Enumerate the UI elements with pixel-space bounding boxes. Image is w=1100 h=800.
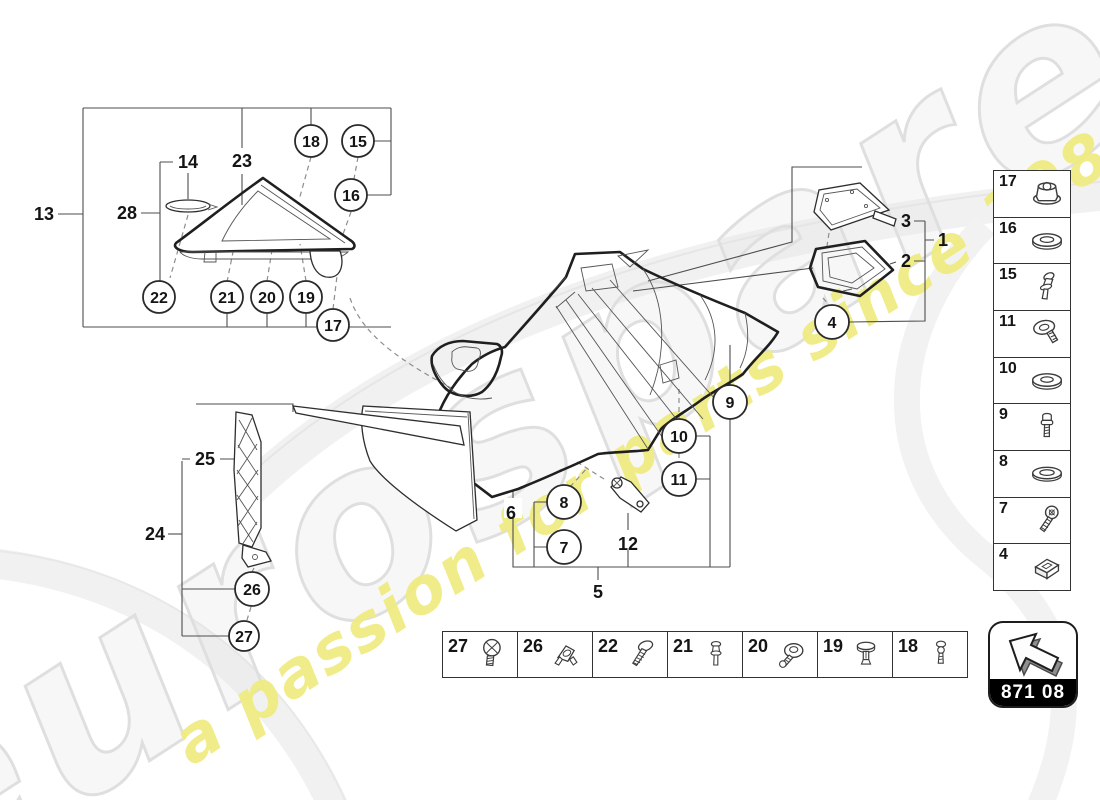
part-number: 27 (448, 636, 468, 657)
part-number: 20 (748, 636, 768, 657)
quarter-trim-part (166, 178, 354, 277)
flange-nut-icon (1026, 173, 1068, 215)
svg-text:17: 17 (324, 318, 342, 335)
callout-10[interactable]: 10 (662, 419, 696, 453)
svg-text:27: 27 (235, 629, 253, 646)
legend-item-16[interactable]: 16 (994, 218, 1070, 265)
part-number: 21 (673, 636, 693, 657)
part-number: 22 (598, 636, 618, 657)
back-arrow-icon (996, 626, 1070, 680)
svg-text:26: 26 (243, 582, 261, 599)
page-code-badge: 871 08 (990, 679, 1076, 706)
legend-item-10[interactable]: 10 (994, 358, 1070, 405)
soft-top-cover-part (293, 250, 778, 531)
legend-item-15[interactable]: 15 (994, 264, 1070, 311)
legend-item-26[interactable]: 26 (518, 632, 593, 677)
stud-bolt-icon (1026, 406, 1068, 448)
label-28: 28 (117, 203, 137, 223)
svg-text:20: 20 (258, 290, 276, 307)
label-23: 23 (232, 151, 252, 171)
part-number: 19 (823, 636, 843, 657)
label-13: 13 (34, 204, 54, 224)
svg-text:19: 19 (297, 290, 315, 307)
exploded-diagram: 13 14 23 28 25 24 6 5 12 3 1 2 18 15 16 … (0, 0, 1100, 800)
callout-18[interactable]: 18 (295, 125, 327, 157)
callout-11[interactable]: 11 (662, 462, 696, 496)
label-2: 2 (901, 251, 911, 271)
part-number: 9 (999, 406, 1008, 424)
callout-16[interactable]: 16 (335, 179, 367, 211)
legend-item-7[interactable]: 7 (994, 498, 1070, 545)
hinge-bracket-part (611, 477, 649, 512)
legend-item-11[interactable]: 11 (994, 311, 1070, 358)
label-14: 14 (178, 152, 198, 172)
blind-rivet-icon (1026, 266, 1068, 308)
circled-callouts: 18 15 16 22 21 20 19 17 26 27 8 7 9 10 1… (143, 125, 849, 651)
legend-item-18[interactable]: 18 (893, 632, 967, 677)
callout-20[interactable]: 20 (251, 281, 283, 313)
part-number: 26 (523, 636, 543, 657)
svg-text:22: 22 (150, 290, 168, 307)
callout-15[interactable]: 15 (342, 125, 374, 157)
callout-21[interactable]: 21 (211, 281, 243, 313)
svg-text:8: 8 (560, 495, 569, 512)
callout-26[interactable]: 26 (235, 572, 269, 606)
svg-text:15: 15 (349, 134, 367, 151)
parts-diagram-page: eurospares a passion for parts since 198… (0, 0, 1100, 800)
legend-item-22[interactable]: 22 (593, 632, 668, 677)
page-nav-box[interactable]: 871 08 (988, 621, 1078, 708)
washer-icon (1026, 453, 1068, 495)
label-5: 5 (593, 582, 603, 602)
part-number: 17 (999, 173, 1017, 191)
legend-item-27[interactable]: 27 (443, 632, 518, 677)
label-1: 1 (938, 230, 948, 250)
fastener-legend-sidebar: 17 16 15 11 (993, 170, 1071, 591)
washer-icon (1026, 360, 1068, 402)
svg-text:10: 10 (670, 429, 688, 446)
mounting-plates-part (810, 183, 896, 296)
part-number: 11 (999, 313, 1016, 331)
grommet-nut-icon (771, 635, 811, 675)
clip-nut-icon (1026, 546, 1068, 588)
part-number: 10 (999, 360, 1017, 378)
label-24: 24 (145, 524, 165, 544)
expander-rivet-icon (1026, 313, 1068, 355)
svg-text:16: 16 (342, 188, 360, 205)
legend-item-17[interactable]: 17 (994, 171, 1070, 218)
spring-clip-icon (546, 635, 586, 675)
washer-icon (1026, 220, 1068, 262)
svg-text:21: 21 (218, 290, 236, 307)
callout-7[interactable]: 7 (547, 530, 581, 564)
part-number: 15 (999, 266, 1017, 284)
part-number: 4 (999, 546, 1008, 564)
svg-text:9: 9 (726, 395, 735, 412)
legend-item-20[interactable]: 20 (743, 632, 818, 677)
tapping-screw-icon (621, 635, 661, 675)
callout-17[interactable]: 17 (317, 309, 349, 341)
ball-pin-icon (921, 635, 961, 675)
vent-grille-part (234, 412, 271, 567)
part-number: 18 (898, 636, 918, 657)
push-rivet-icon (846, 635, 886, 675)
part-number: 16 (999, 220, 1017, 238)
svg-text:11: 11 (671, 472, 688, 489)
label-12: 12 (618, 534, 638, 554)
callout-9[interactable]: 9 (713, 385, 747, 419)
label-6: 6 (506, 503, 516, 523)
callout-8[interactable]: 8 (547, 485, 581, 519)
part-number: 7 (999, 500, 1008, 518)
callout-4[interactable]: 4 (815, 305, 849, 339)
svg-text:18: 18 (302, 134, 320, 151)
svg-text:4: 4 (828, 315, 837, 332)
fastener-legend-strip: 27 26 22 21 (442, 631, 968, 678)
svg-text:7: 7 (560, 540, 569, 557)
torx-screw-icon (1026, 500, 1068, 542)
legend-item-8[interactable]: 8 (994, 451, 1070, 498)
callout-27[interactable]: 27 (229, 621, 259, 651)
label-3: 3 (901, 211, 911, 231)
legend-item-4[interactable]: 4 (994, 544, 1070, 590)
part-number: 8 (999, 453, 1008, 471)
rivet-pin-icon (696, 635, 736, 675)
phillips-screw-icon (471, 635, 511, 675)
callout-19[interactable]: 19 (290, 281, 322, 313)
legend-item-21[interactable]: 21 (668, 632, 743, 677)
legend-item-9[interactable]: 9 (994, 404, 1070, 451)
callout-22[interactable]: 22 (143, 281, 175, 313)
legend-item-19[interactable]: 19 (818, 632, 893, 677)
label-25: 25 (195, 449, 215, 469)
